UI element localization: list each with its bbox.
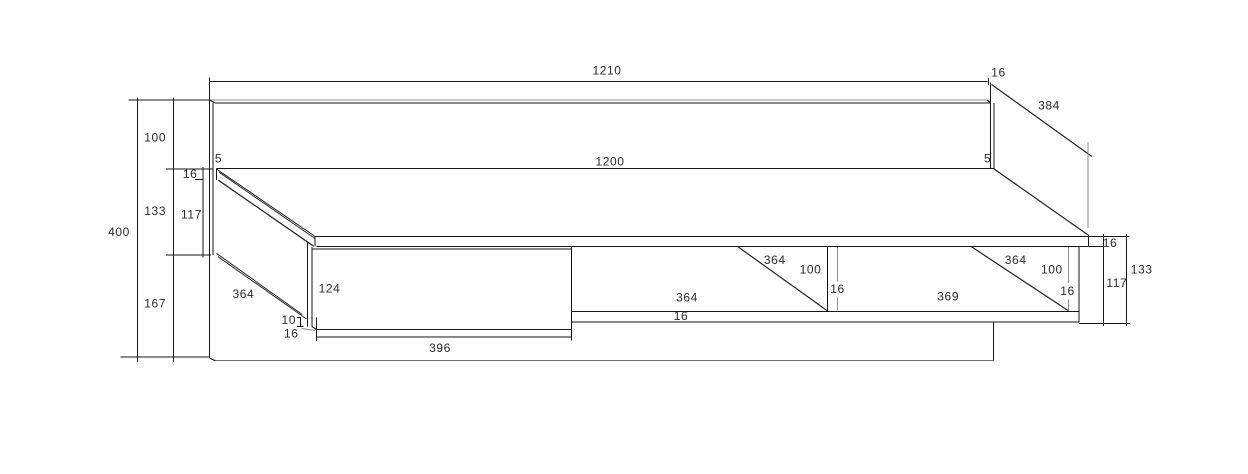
- svg-text:16: 16: [1060, 284, 1075, 298]
- svg-text:117: 117: [1106, 276, 1127, 290]
- svg-text:16: 16: [991, 66, 1006, 80]
- svg-text:124: 124: [319, 282, 341, 296]
- svg-text:400: 400: [108, 225, 130, 239]
- svg-text:10: 10: [281, 313, 296, 327]
- svg-text:364: 364: [1005, 253, 1027, 267]
- svg-text:364: 364: [232, 287, 254, 301]
- svg-text:384: 384: [1038, 99, 1060, 113]
- svg-text:100: 100: [1041, 263, 1063, 277]
- svg-text:16: 16: [284, 327, 299, 341]
- svg-text:396: 396: [429, 341, 451, 355]
- svg-text:364: 364: [676, 291, 698, 305]
- svg-text:16: 16: [183, 167, 198, 181]
- svg-text:5: 5: [215, 151, 222, 165]
- svg-text:1200: 1200: [595, 155, 624, 169]
- svg-text:100: 100: [800, 263, 822, 277]
- svg-text:16: 16: [674, 309, 689, 323]
- svg-text:117: 117: [181, 207, 202, 221]
- svg-text:16: 16: [1103, 236, 1118, 250]
- svg-text:133: 133: [144, 204, 166, 218]
- svg-text:100: 100: [144, 130, 166, 144]
- svg-text:364: 364: [764, 253, 786, 267]
- svg-text:5: 5: [984, 151, 991, 165]
- svg-text:167: 167: [144, 297, 166, 311]
- svg-text:1210: 1210: [592, 64, 621, 78]
- svg-text:369: 369: [937, 289, 959, 303]
- svg-text:133: 133: [1131, 263, 1153, 277]
- svg-text:16: 16: [830, 282, 845, 296]
